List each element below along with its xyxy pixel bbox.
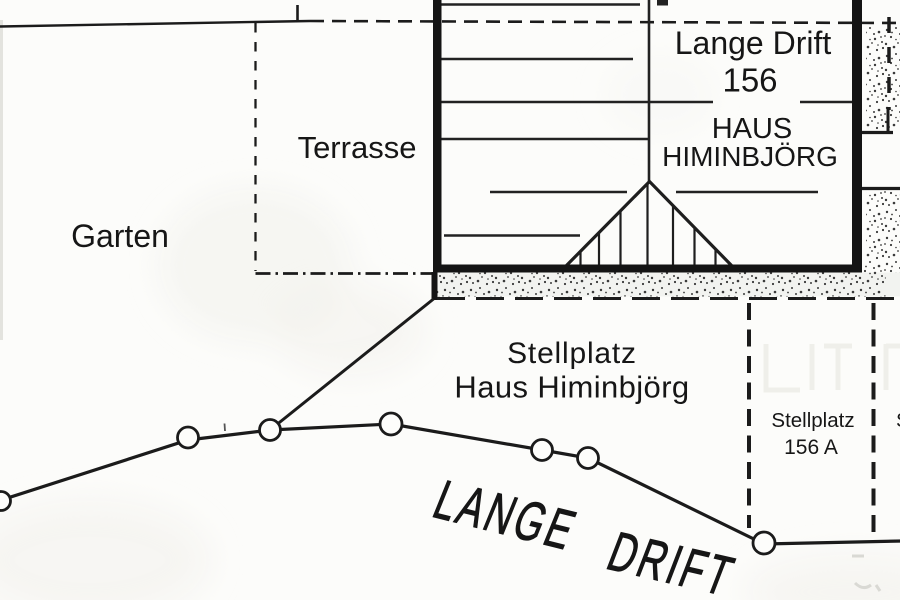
svg-text:Stellplatz: Stellplatz (507, 337, 637, 370)
svg-text:HIMINBJÖRG: HIMINBJÖRG (662, 141, 838, 172)
svg-text:156 A: 156 A (784, 436, 838, 459)
svg-text:Haus Himinbjörg: Haus Himinbjörg (454, 370, 689, 405)
svg-text:156: 156 (722, 62, 777, 99)
svg-text:Terrasse: Terrasse (298, 130, 417, 165)
svg-text:Stellplatz: Stellplatz (771, 409, 854, 432)
svg-text:Garten: Garten (71, 218, 169, 254)
svg-text:Stellplatz: Stellplatz (896, 409, 900, 432)
svg-text:Lange Drift: Lange Drift (675, 25, 832, 61)
